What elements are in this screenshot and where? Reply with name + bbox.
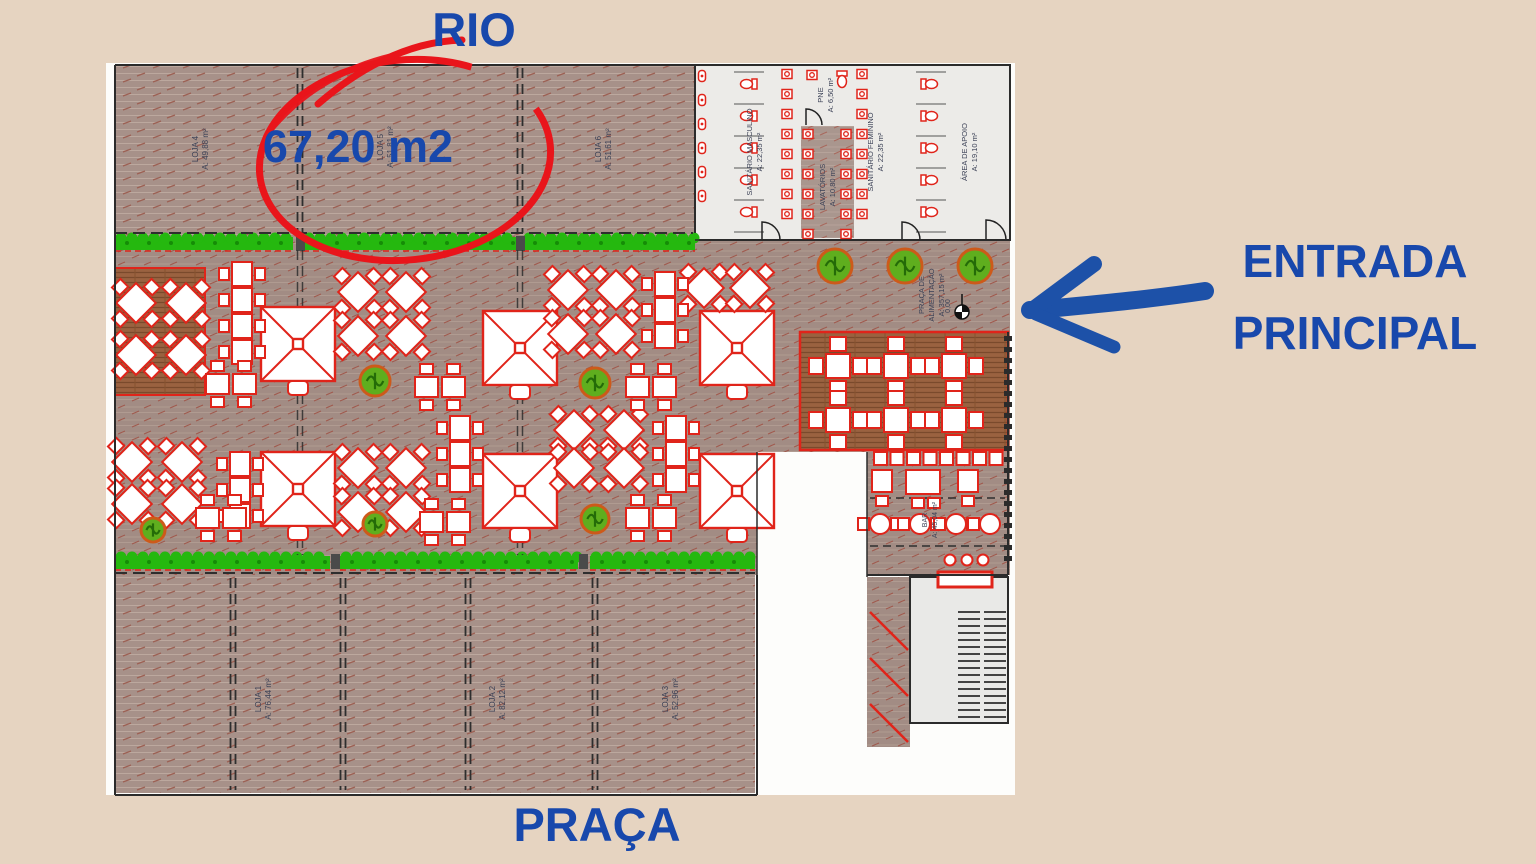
tree — [818, 249, 852, 283]
sink-icon — [841, 170, 851, 179]
umbrella-kiosk — [700, 454, 774, 542]
floor-plan-drawing: LOJA 4A: 49,88 m²LOJA 5A: 51,81 m²LOJA 6… — [0, 0, 1536, 864]
sink-icon — [803, 150, 813, 159]
sink-icon — [803, 170, 813, 179]
sink-icon — [782, 130, 792, 139]
window-ticks — [1004, 336, 1012, 561]
toilet-icon — [921, 207, 938, 217]
table-stack — [653, 416, 699, 492]
entrada-arrow — [1021, 264, 1205, 347]
sink-icon — [782, 110, 792, 119]
toilet-icon — [921, 111, 938, 121]
sink-icon — [803, 190, 813, 199]
toilet-icon — [921, 143, 938, 153]
sink-icon — [803, 230, 813, 239]
rio-label: RIO — [414, 6, 534, 53]
tree — [363, 512, 387, 536]
sink-icon — [857, 90, 867, 99]
tree — [580, 368, 610, 398]
urinal-icon — [699, 191, 706, 202]
toilet-icon — [921, 175, 938, 185]
sink-icon — [841, 210, 851, 219]
toilet-icon — [837, 71, 847, 88]
table-stack — [642, 272, 688, 348]
urinal-icon — [699, 167, 706, 178]
urinal-icon — [699, 71, 706, 82]
sink-icon — [782, 70, 792, 79]
sink-icon — [782, 90, 792, 99]
toilet-icon — [741, 207, 758, 217]
sink-icon — [857, 70, 867, 79]
svg-text:0,00: 0,00 — [945, 299, 952, 313]
toilet-icon — [741, 79, 758, 89]
urinal-icon — [699, 143, 706, 154]
sink-icon — [841, 190, 851, 199]
sink-icon — [841, 150, 851, 159]
umbrella-kiosk — [483, 454, 557, 542]
table-stack — [437, 416, 483, 492]
area-label-lavatorios: LAVATÓRIOSA: 10,80 m² — [818, 164, 837, 210]
principal-label: PRINCIPAL — [1192, 310, 1518, 356]
sink-icon — [807, 71, 817, 80]
praca-label: PRAÇA — [492, 801, 702, 848]
sink-icon — [841, 130, 851, 139]
umbrella-kiosk — [483, 311, 557, 399]
urinal-icon — [699, 95, 706, 106]
urinal-icon — [699, 119, 706, 130]
sink-icon — [782, 170, 792, 179]
sink-icon — [841, 230, 851, 239]
entrada-label: ENTRADA — [1200, 238, 1510, 284]
sink-icon — [782, 210, 792, 219]
umbrella-kiosk — [261, 307, 335, 395]
umbrella-kiosk — [700, 311, 774, 399]
sink-icon — [803, 130, 813, 139]
stair-room — [910, 577, 1008, 723]
sink-icon — [803, 210, 813, 219]
area-label-praca-alimentacao: PRAÇA DEALIMENTAÇÃOA: 357,15 m² — [917, 268, 946, 321]
tree — [581, 505, 609, 533]
sink-icon — [857, 210, 867, 219]
sink-icon — [782, 150, 792, 159]
annotated-floor-plan: LOJA 4A: 49,88 m²LOJA 5A: 51,81 m²LOJA 6… — [0, 0, 1536, 864]
tree — [141, 518, 165, 542]
toilet-icon — [921, 79, 938, 89]
tree — [958, 249, 992, 283]
hedge — [590, 552, 756, 571]
umbrella-kiosk — [261, 452, 335, 540]
area-value-label: 67,20 m2 — [248, 124, 468, 169]
tree — [360, 366, 390, 396]
sink-icon — [782, 190, 792, 199]
